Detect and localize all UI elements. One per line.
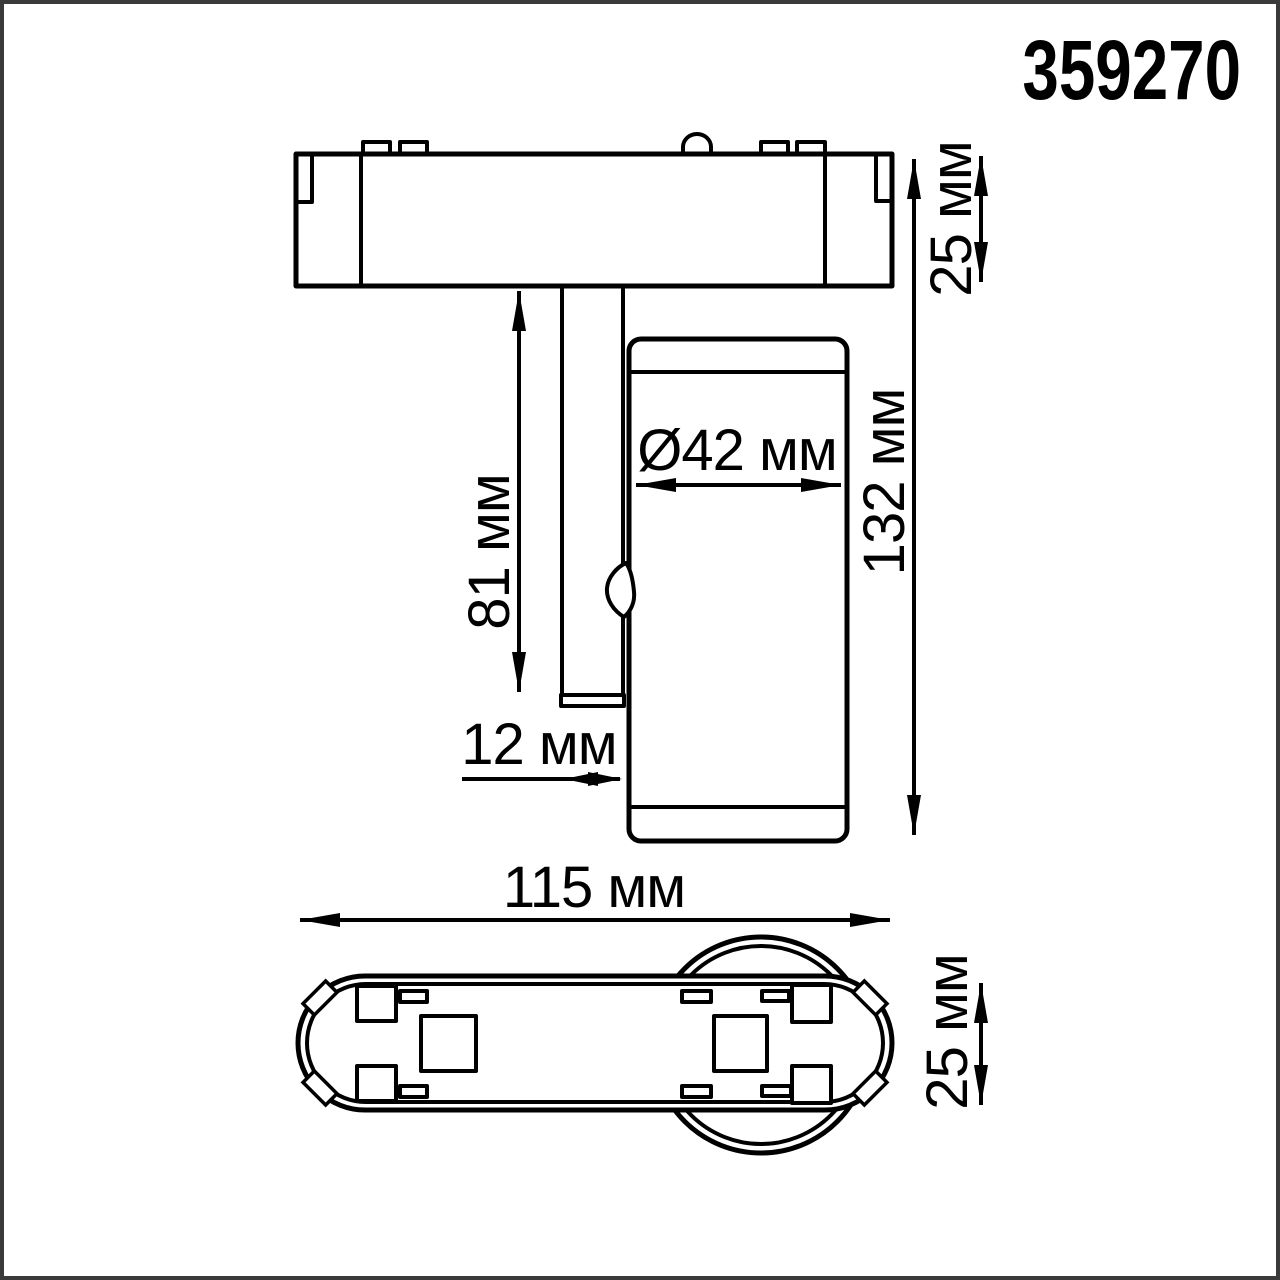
dimension-label: 81 мм <box>457 474 522 629</box>
dimension-stem-thickness: 12 мм <box>461 712 622 786</box>
lamp-cylinder <box>629 339 847 841</box>
contact-slot <box>400 1086 427 1097</box>
magnet-pad <box>792 985 831 1022</box>
track-adapter-body <box>296 154 892 286</box>
dimension-base-length: 115 мм <box>300 855 890 920</box>
magnet-pad <box>792 1066 831 1103</box>
contact-slot <box>762 1086 791 1096</box>
contact-slot <box>762 991 789 1001</box>
dimension-label: 115 мм <box>503 855 685 920</box>
dimension-label: 12 мм <box>461 712 616 777</box>
product-number: 359270 <box>1022 23 1241 117</box>
dimension-label: 25 мм <box>919 141 984 296</box>
bottom-view: 115 мм 25 мм <box>298 855 981 1153</box>
contact-slot <box>682 991 711 1002</box>
contact-slot <box>400 991 427 1002</box>
dimension-label: Ø42 мм <box>637 418 837 483</box>
dimension-stem-length: 81 мм <box>457 291 522 692</box>
technical-drawing: 359270 25 мм 132 мм <box>4 4 1276 1276</box>
contact-slot <box>682 1086 711 1097</box>
center-magnet <box>421 1016 476 1071</box>
magnet-pad <box>357 986 396 1021</box>
side-view: 25 мм 132 мм 81 мм Ø42 мм 12 мм <box>296 134 984 841</box>
dimension-label: 132 мм <box>852 389 917 576</box>
center-magnet <box>714 1016 767 1071</box>
dimension-track-height: 25 мм <box>919 141 984 296</box>
product-number-text: 359270 <box>1022 23 1241 117</box>
dimension-label: 25 мм <box>915 954 980 1109</box>
magnet-pad <box>357 1066 396 1101</box>
adjust-knob <box>607 563 634 617</box>
dimension-base-width: 25 мм <box>915 954 981 1109</box>
dimension-head-diameter: Ø42 мм <box>636 418 841 485</box>
stem-foot <box>561 695 624 706</box>
drawing-sheet: 359270 25 мм 132 мм <box>0 0 1280 1280</box>
